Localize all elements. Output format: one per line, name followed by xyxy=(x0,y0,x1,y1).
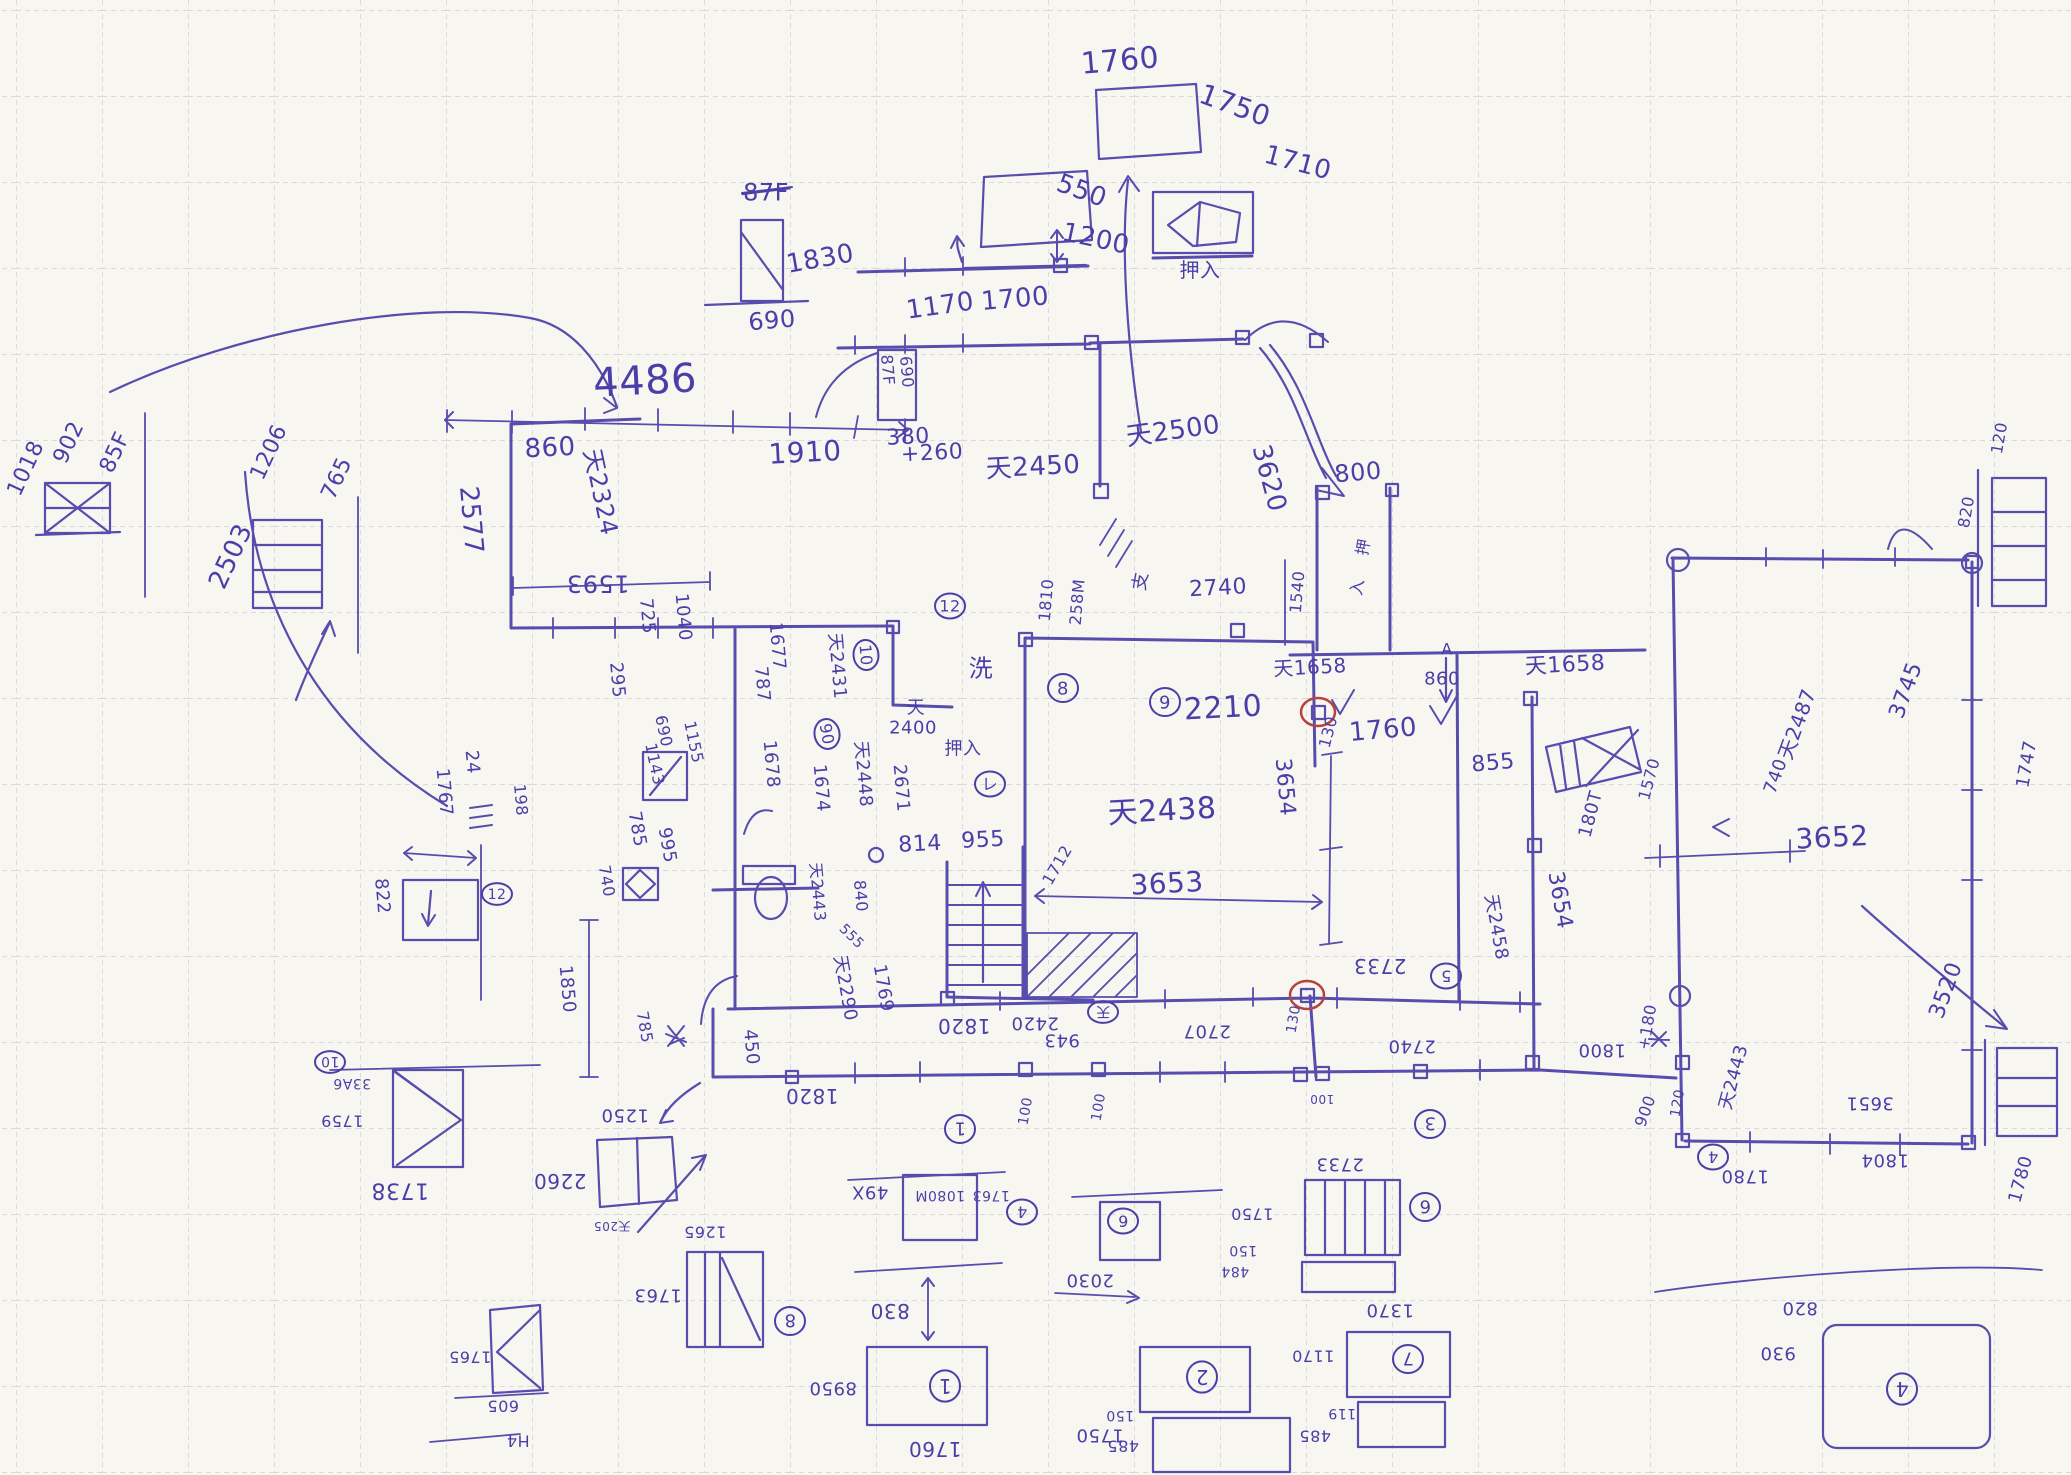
svg-text:7: 7 xyxy=(1402,1348,1414,1369)
annotation-label: 2740 xyxy=(1388,1036,1436,1057)
svg-text:6: 6 xyxy=(1419,1196,1431,1217)
svg-text:1760: 1760 xyxy=(909,1437,962,1461)
svg-text:8: 8 xyxy=(784,1310,796,1331)
svg-text:天2438: 天2438 xyxy=(1107,791,1218,832)
annotation-label: 87F xyxy=(877,354,899,387)
svg-text:2707: 2707 xyxy=(1183,1021,1231,1042)
annotation-label: 485 xyxy=(1299,1426,1331,1445)
annotation-label: 2671 xyxy=(889,763,914,812)
svg-text:天: 天 xyxy=(907,697,926,718)
annotation-label: 150 xyxy=(1229,1242,1257,1258)
annotation-label: 787 xyxy=(750,665,774,703)
annotation-label: 天 xyxy=(907,697,926,718)
svg-text:1800: 1800 xyxy=(1578,1040,1626,1061)
annotation-label: 1540 xyxy=(1286,570,1309,614)
svg-text:485: 485 xyxy=(1299,1426,1331,1445)
svg-text:150: 150 xyxy=(1229,1242,1257,1258)
svg-text:87F: 87F xyxy=(743,178,789,206)
annotation-label: 930 xyxy=(1760,1343,1796,1364)
svg-text:930: 930 xyxy=(1760,1343,1796,1364)
svg-text:4: 4 xyxy=(1708,1147,1719,1166)
svg-text:4: 4 xyxy=(1017,1202,1028,1221)
svg-text:1780: 1780 xyxy=(1721,1166,1769,1187)
annotation-label: 1767 xyxy=(432,767,457,816)
svg-text:2740: 2740 xyxy=(1188,574,1247,602)
svg-text:1080M: 1080M xyxy=(915,1187,965,1203)
annotation-label: 1370 xyxy=(1366,1300,1414,1321)
svg-text:1763: 1763 xyxy=(634,1285,682,1306)
annotation-label: 1763 xyxy=(634,1285,682,1306)
svg-text:3652: 3652 xyxy=(1795,819,1870,856)
annotation-label: 天1658 xyxy=(1524,651,1606,680)
annotation-label: 1700 xyxy=(980,281,1051,317)
annotation-label: 119 xyxy=(1328,1405,1356,1421)
svg-text:485: 485 xyxy=(1107,1436,1139,1455)
svg-text:855: 855 xyxy=(1470,749,1516,778)
svg-text:1850: 1850 xyxy=(555,964,580,1013)
svg-text:690: 690 xyxy=(747,304,797,336)
annotation-label: 2733 xyxy=(1354,954,1407,978)
annotation-label: 800 xyxy=(1333,456,1383,488)
svg-text:24: 24 xyxy=(461,749,484,775)
annotation-label: 1760 xyxy=(1080,40,1161,82)
annotation-label: 258M xyxy=(1066,578,1089,626)
annotation-label: 1250 xyxy=(601,1105,649,1126)
svg-text:258M: 258M xyxy=(1066,578,1089,626)
annotation-label: 725 xyxy=(635,597,659,635)
annotation-label: 1810 xyxy=(1035,578,1058,622)
annotation-label: 1763 xyxy=(972,1187,1010,1203)
svg-text:860: 860 xyxy=(1424,668,1460,689)
svg-text:天1658: 天1658 xyxy=(1273,653,1348,681)
annotation-label: 1780 xyxy=(1721,1166,1769,1187)
annotation-label: 943 xyxy=(1044,1030,1080,1051)
annotation-label: 2210 xyxy=(1183,688,1263,727)
annotation-label: 押入 xyxy=(945,738,982,759)
svg-text:90: 90 xyxy=(816,722,838,746)
svg-text:800: 800 xyxy=(1333,456,1383,488)
annotation-label: 150 xyxy=(1106,1407,1134,1423)
annotation-label: 1080M xyxy=(915,1187,965,1203)
svg-text:2671: 2671 xyxy=(889,763,914,812)
svg-text:10: 10 xyxy=(321,1053,340,1069)
annotation-label: 840 xyxy=(850,879,872,913)
svg-text:1265: 1265 xyxy=(684,1222,727,1241)
svg-text:87F: 87F xyxy=(877,354,899,387)
svg-text:2733: 2733 xyxy=(1316,1154,1364,1175)
annotation-label: 3653 xyxy=(1130,865,1205,902)
svg-text:1820: 1820 xyxy=(938,1014,991,1038)
annotation-label: 1850 xyxy=(555,964,580,1013)
annotation-label: 822 xyxy=(370,877,394,915)
annotation-label: 押入 xyxy=(1180,258,1221,282)
annotation-label: 2030 xyxy=(1066,1270,1114,1291)
svg-text:49X: 49X xyxy=(852,1182,889,1203)
svg-text:1738: 1738 xyxy=(371,1177,429,1202)
svg-text:484: 484 xyxy=(1221,1263,1249,1279)
annotation-label: 1765 xyxy=(449,1347,492,1366)
svg-text:+260: +260 xyxy=(900,439,964,467)
svg-text:2740: 2740 xyxy=(1388,1036,1436,1057)
annotation-label: 1674 xyxy=(809,763,834,812)
annotation-label: 1760 xyxy=(909,1437,962,1461)
svg-text:119: 119 xyxy=(1328,1405,1356,1421)
svg-text:725: 725 xyxy=(635,597,659,635)
annotation-label: 2740 xyxy=(1188,574,1247,602)
graph-grid xyxy=(0,0,2071,1475)
annotation-label: 1040 xyxy=(671,592,696,641)
svg-text:1759: 1759 xyxy=(321,1111,364,1130)
svg-text:2030: 2030 xyxy=(1066,1270,1114,1291)
annotation-label: 955 xyxy=(961,827,1006,854)
annotation-label: 690 xyxy=(747,304,797,336)
svg-text:支: 支 xyxy=(1129,570,1153,592)
svg-text:1765: 1765 xyxy=(449,1347,492,1366)
annotation-label: 24 xyxy=(461,749,484,775)
svg-text:1250: 1250 xyxy=(601,1105,649,1126)
svg-text:33A6: 33A6 xyxy=(333,1075,371,1091)
svg-text:1760: 1760 xyxy=(1080,40,1161,82)
annotation-label: 605 xyxy=(487,1396,519,1415)
annotation-label: 天2438 xyxy=(1107,791,1218,832)
svg-text:4486: 4486 xyxy=(592,355,698,406)
annotation-label: 1265 xyxy=(684,1222,727,1241)
annotation-label: 295 xyxy=(605,661,629,699)
svg-text:押入: 押入 xyxy=(1180,258,1221,282)
annotation-label: 2707 xyxy=(1183,1021,1231,1042)
svg-text:4: 4 xyxy=(1895,1377,1908,1401)
svg-text:天: 天 xyxy=(1096,1003,1111,1019)
annotation-label: 1820 xyxy=(938,1014,991,1038)
svg-text:1593: 1593 xyxy=(566,570,629,598)
annotation-label: 450 xyxy=(739,1028,763,1066)
svg-text:1678: 1678 xyxy=(759,739,784,788)
annotation-label: 3651 xyxy=(1846,1093,1894,1114)
svg-text:605: 605 xyxy=(487,1396,519,1415)
annotation-label: H4 xyxy=(506,1431,529,1450)
svg-text:1170: 1170 xyxy=(1292,1346,1335,1365)
annotation-label: 支 xyxy=(1129,570,1153,592)
svg-text:1760: 1760 xyxy=(1348,712,1419,748)
annotation-label: 2733 xyxy=(1316,1154,1364,1175)
svg-text:押: 押 xyxy=(1352,537,1374,557)
floorplan-sketch: 1760175055012001170170087F18306901710押入4… xyxy=(0,0,2071,1475)
annotation-label: A xyxy=(1441,640,1452,659)
svg-text:822: 822 xyxy=(370,877,394,915)
annotation-label: 100 xyxy=(1310,1092,1334,1106)
annotation-label: +260 xyxy=(900,439,964,467)
annotation-label: 860 xyxy=(1424,668,1460,689)
annotation-label: 1750 xyxy=(1231,1204,1274,1223)
svg-text:1677: 1677 xyxy=(765,621,790,670)
annotation-label: 830 xyxy=(870,1299,910,1323)
svg-text:955: 955 xyxy=(961,827,1006,854)
svg-text:H4: H4 xyxy=(506,1431,529,1450)
annotation-label: 入 xyxy=(1346,577,1368,597)
annotation-label: 860 xyxy=(524,432,577,465)
annotation-label: 1170 xyxy=(1292,1346,1335,1365)
svg-text:1820: 1820 xyxy=(786,1084,839,1108)
annotation-label: 1759 xyxy=(321,1111,364,1130)
annotation-label: 1760 xyxy=(1348,712,1419,748)
svg-text:2210: 2210 xyxy=(1183,688,1263,727)
annotation-label: 33A6 xyxy=(333,1075,371,1091)
annotation-label: 2577 xyxy=(453,485,489,556)
svg-text:1: 1 xyxy=(954,1118,966,1139)
svg-text:150: 150 xyxy=(1106,1407,1134,1423)
svg-text:押入: 押入 xyxy=(945,738,982,759)
svg-text:1804: 1804 xyxy=(1861,1150,1909,1171)
svg-text:洗: 洗 xyxy=(969,654,994,682)
svg-text:2260: 2260 xyxy=(534,1169,587,1193)
svg-text:3654: 3654 xyxy=(1270,757,1300,817)
svg-text:3653: 3653 xyxy=(1130,865,1205,902)
svg-text:1700: 1700 xyxy=(980,281,1051,317)
annotation-label: 1677 xyxy=(765,621,790,670)
annotation-label: 484 xyxy=(1221,1263,1249,1279)
svg-text:天2450: 天2450 xyxy=(985,450,1081,485)
annotation-label: 3654 xyxy=(1270,757,1300,817)
svg-text:1540: 1540 xyxy=(1286,570,1309,614)
svg-text:943: 943 xyxy=(1044,1030,1080,1051)
svg-text:840: 840 xyxy=(850,879,872,913)
annotation-label: 1804 xyxy=(1861,1150,1909,1171)
svg-text:295: 295 xyxy=(605,661,629,699)
svg-text:1910: 1910 xyxy=(768,434,843,471)
svg-text:820: 820 xyxy=(1782,1298,1818,1319)
annotation-label: 820 xyxy=(1782,1298,1818,1319)
annotation-label: 4486 xyxy=(592,355,698,406)
svg-text:1370: 1370 xyxy=(1366,1300,1414,1321)
svg-text:1040: 1040 xyxy=(671,592,696,641)
svg-text:6: 6 xyxy=(1118,1211,1129,1230)
annotation-label: 814 xyxy=(898,831,943,858)
annotation-label: 1593 xyxy=(566,570,629,598)
svg-text:8950: 8950 xyxy=(809,1378,857,1399)
annotation-label: 49X xyxy=(852,1182,889,1203)
svg-text:2400: 2400 xyxy=(889,717,937,738)
annotation-label: 1738 xyxy=(371,1177,429,1202)
svg-text:12: 12 xyxy=(939,597,960,616)
svg-text:2577: 2577 xyxy=(453,485,489,556)
svg-text:2733: 2733 xyxy=(1354,954,1407,978)
svg-text:入: 入 xyxy=(1346,577,1368,597)
svg-text:レ: レ xyxy=(982,775,999,794)
svg-text:1: 1 xyxy=(938,1374,951,1398)
svg-text:1810: 1810 xyxy=(1035,578,1058,622)
svg-text:814: 814 xyxy=(898,831,943,858)
annotation-label: 1820 xyxy=(786,1084,839,1108)
annotation-label: 87F xyxy=(742,178,791,206)
annotation-label: 3652 xyxy=(1795,819,1870,856)
annotation-label: 8950 xyxy=(809,1378,857,1399)
svg-text:A: A xyxy=(1441,640,1452,659)
annotation-label: 485 xyxy=(1107,1436,1139,1455)
annotation-label: 1910 xyxy=(768,434,843,471)
svg-text:5: 5 xyxy=(1441,966,1452,985)
svg-text:860: 860 xyxy=(524,432,577,465)
svg-text:198: 198 xyxy=(510,783,532,817)
annotation-label: 2400 xyxy=(889,717,937,738)
annotation-label: 1800 xyxy=(1578,1040,1626,1061)
svg-text:1763: 1763 xyxy=(972,1187,1010,1203)
svg-text:10: 10 xyxy=(856,644,877,667)
svg-text:9: 9 xyxy=(1159,692,1171,713)
svg-text:8: 8 xyxy=(1057,678,1069,699)
annotation-label: 198 xyxy=(510,783,532,817)
svg-text:100: 100 xyxy=(1310,1092,1334,1106)
svg-text:830: 830 xyxy=(870,1299,910,1323)
svg-text:450: 450 xyxy=(739,1028,763,1066)
svg-text:1750: 1750 xyxy=(1231,1204,1274,1223)
svg-text:690: 690 xyxy=(896,355,918,389)
svg-text:2: 2 xyxy=(1195,1365,1208,1389)
circled-number-label: 12 xyxy=(935,594,965,619)
scanned-floorplan-page: 1760175055012001170170087F18306901710押入4… xyxy=(0,0,2071,1475)
svg-text:天205: 天205 xyxy=(594,1219,631,1233)
annotation-label: 1678 xyxy=(759,739,784,788)
annotation-label: 天205 xyxy=(594,1219,631,1233)
svg-text:1767: 1767 xyxy=(432,767,457,816)
svg-text:1674: 1674 xyxy=(809,763,834,812)
svg-text:3: 3 xyxy=(1424,1113,1436,1134)
annotation-label: 855 xyxy=(1470,749,1516,778)
annotation-label: 洗 xyxy=(969,654,994,682)
svg-text:787: 787 xyxy=(750,665,774,703)
annotation-label: 2260 xyxy=(534,1169,587,1193)
annotation-label: 押 xyxy=(1352,537,1374,557)
svg-text:天1658: 天1658 xyxy=(1524,651,1606,680)
svg-text:12: 12 xyxy=(488,887,507,903)
annotation-label: 天1658 xyxy=(1273,653,1348,681)
svg-text:3651: 3651 xyxy=(1846,1093,1894,1114)
annotation-label: 天2450 xyxy=(985,450,1081,485)
annotation-label: 690 xyxy=(896,355,918,389)
